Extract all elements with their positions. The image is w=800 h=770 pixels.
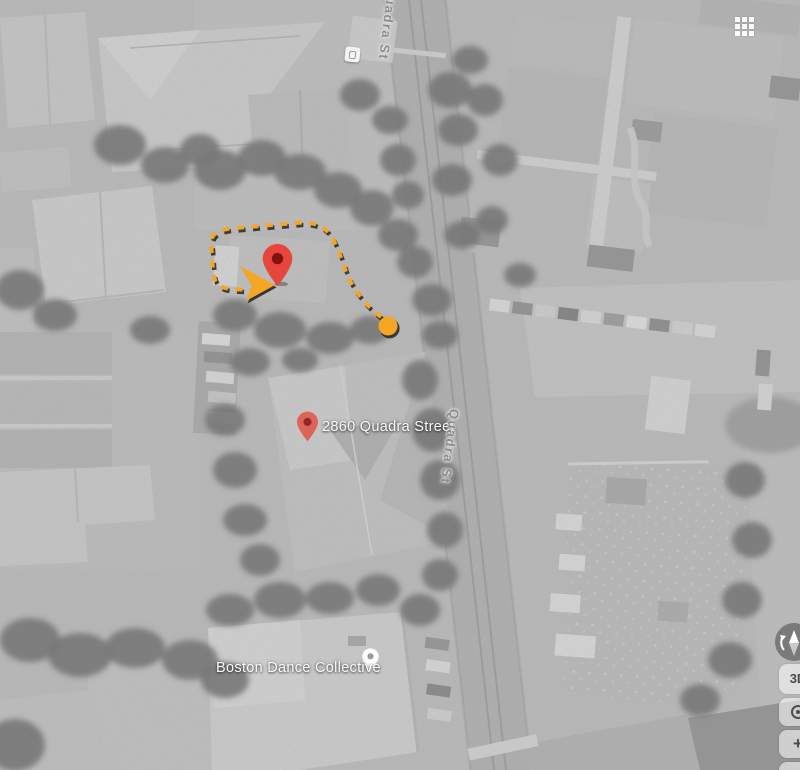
route-overlay <box>0 0 800 770</box>
3d-button[interactable]: 3D <box>779 664 800 694</box>
zoom-out-button[interactable]: − <box>779 762 800 770</box>
apps-grid-icon[interactable] <box>735 17 755 37</box>
zoom-in-button[interactable]: + <box>779 730 800 758</box>
poi-label[interactable]: Boston Dance Collective <box>216 660 381 676</box>
my-location-button[interactable] <box>779 698 800 726</box>
bus-stop-icon[interactable] <box>344 46 360 62</box>
bus-glyph <box>349 50 357 59</box>
compass-icon <box>775 623 800 661</box>
address-pin[interactable] <box>297 410 318 448</box>
address-label[interactable]: 2860 Quadra Street <box>322 419 455 435</box>
route-path-shadow <box>213 225 383 319</box>
compass-button[interactable] <box>775 623 800 661</box>
my-location-icon <box>791 705 800 719</box>
route-start-marker <box>379 317 398 336</box>
route-destination-pin[interactable] <box>262 244 293 291</box>
route-path <box>211 223 381 317</box>
map-canvas[interactable]: 2860 Quadra Street Boston Dance Collecti… <box>0 0 800 770</box>
